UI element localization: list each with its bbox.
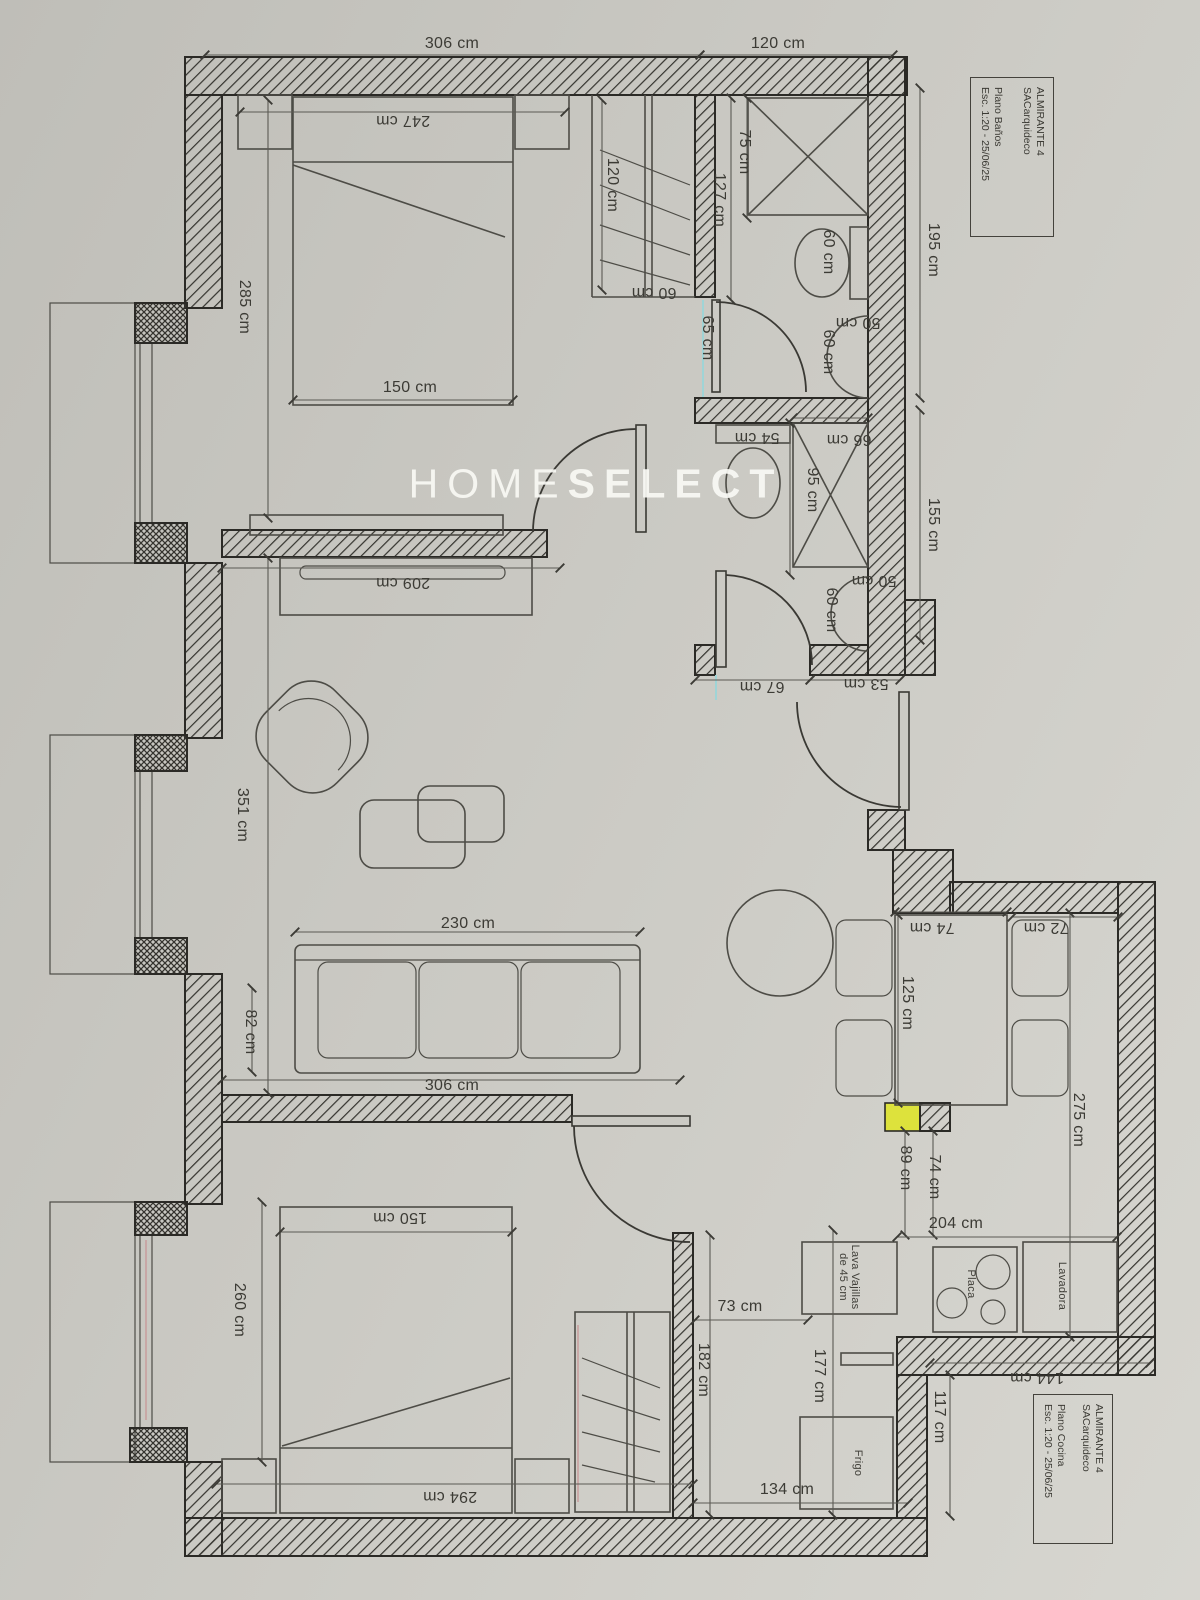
dim-label: 67 cm	[739, 677, 784, 695]
dim-label: 155 cm	[924, 498, 942, 552]
dim-label: 66 cm	[826, 430, 871, 448]
dim-label: 95 cm	[803, 467, 821, 512]
label-layer: 306 cm 120 cm 247 cm 285 cm 150 cm 120 c…	[0, 0, 1200, 1600]
watermark-light: HOME	[409, 461, 568, 507]
dim-label: 306 cm	[425, 1077, 479, 1095]
title-block-cocina: ALMIRANTE 4 SACarquideco Plano Cocina Es…	[1033, 1394, 1113, 1544]
dim-label: 230 cm	[441, 915, 495, 933]
dim-label: 125 cm	[898, 976, 916, 1030]
dim-label: 195 cm	[924, 223, 942, 277]
dim-label: 82 cm	[241, 1009, 259, 1054]
title-block-header: ALMIRANTE 4 SACarquideco	[1020, 87, 1046, 227]
dim-label: 117 cm	[930, 1390, 948, 1443]
dim-label: 150 cm	[383, 379, 437, 397]
dim-label: 150 cm	[373, 1208, 427, 1226]
project-name: ALMIRANTE 4	[1092, 1404, 1105, 1534]
dim-label: 50 cm	[835, 313, 880, 331]
plan-scale: Esc. 1:20 - 25/06/25	[978, 87, 991, 227]
dim-label: 209 cm	[376, 573, 430, 591]
dim-label: 65 cm	[698, 315, 716, 360]
dim-label: 54 cm	[734, 428, 779, 446]
dim-label: 120 cm	[751, 35, 805, 53]
studio-name: SACarquideco	[1079, 1404, 1092, 1534]
dim-label: 75 cm	[735, 129, 753, 174]
dim-label: 285 cm	[235, 280, 253, 334]
dim-label: 72 cm	[1023, 918, 1068, 936]
dim-label: 127 cm	[710, 173, 728, 227]
dim-label: 60 cm	[819, 229, 837, 274]
dim-label: 120 cm	[603, 158, 621, 212]
floorplan-page: 306 cm 120 cm 247 cm 285 cm 150 cm 120 c…	[0, 0, 1200, 1600]
dim-label: 74 cm	[909, 918, 954, 936]
dishwasher-label: Lava Vajillas de 45 cm	[837, 1245, 861, 1310]
watermark-bold: SELECT	[568, 461, 784, 507]
dim-label: 275 cm	[1069, 1093, 1087, 1147]
dim-label: 294 cm	[423, 1487, 477, 1505]
title-block-footer: Plano Baños Esc. 1:20 - 25/06/25	[978, 87, 1004, 227]
dim-label: 247 cm	[376, 111, 430, 129]
title-block-footer: Plano Cocina Esc. 1:20 - 25/06/25	[1041, 1404, 1067, 1534]
dim-label: 204 cm	[929, 1215, 983, 1233]
dim-label: 53 cm	[843, 674, 888, 692]
dishwasher-label-line1: Lava Vajillas	[849, 1245, 861, 1310]
dishwasher-label-line2: de 45 cm	[837, 1245, 849, 1310]
dim-label: 182 cm	[694, 1343, 712, 1397]
dim-label: 260 cm	[230, 1283, 248, 1337]
title-block-banos: ALMIRANTE 4 SACarquideco Plano Baños Esc…	[970, 77, 1054, 237]
dim-label: 60 cm	[822, 587, 840, 632]
hob-label: Placa	[965, 1269, 977, 1298]
project-name: ALMIRANTE 4	[1033, 87, 1046, 227]
dim-label: 60 cm	[631, 283, 676, 301]
dim-label: 134 cm	[760, 1481, 814, 1499]
dim-label: 89 cm	[896, 1145, 914, 1190]
studio-name: SACarquideco	[1020, 87, 1033, 227]
dim-label: 177 cm	[810, 1349, 828, 1403]
dim-label: 50 cm	[851, 571, 896, 589]
dim-label: 144 cm	[1010, 1368, 1064, 1386]
dim-label: 74 cm	[925, 1154, 943, 1199]
dim-label: 60 cm	[819, 329, 837, 374]
homeselect-watermark: HOMESELECT	[409, 461, 784, 508]
plan-name: Plano Cocina	[1054, 1404, 1067, 1534]
fridge-label: Frigo	[852, 1450, 864, 1477]
washer-label: Lavadora	[1056, 1262, 1068, 1310]
plan-name: Plano Baños	[991, 87, 1004, 227]
dim-label: 73 cm	[717, 1298, 762, 1316]
title-block-header: ALMIRANTE 4 SACarquideco	[1079, 1404, 1105, 1534]
dim-label: 351 cm	[233, 788, 251, 842]
plan-scale: Esc. 1:20 - 25/06/25	[1041, 1404, 1054, 1534]
dim-label: 306 cm	[425, 35, 479, 53]
